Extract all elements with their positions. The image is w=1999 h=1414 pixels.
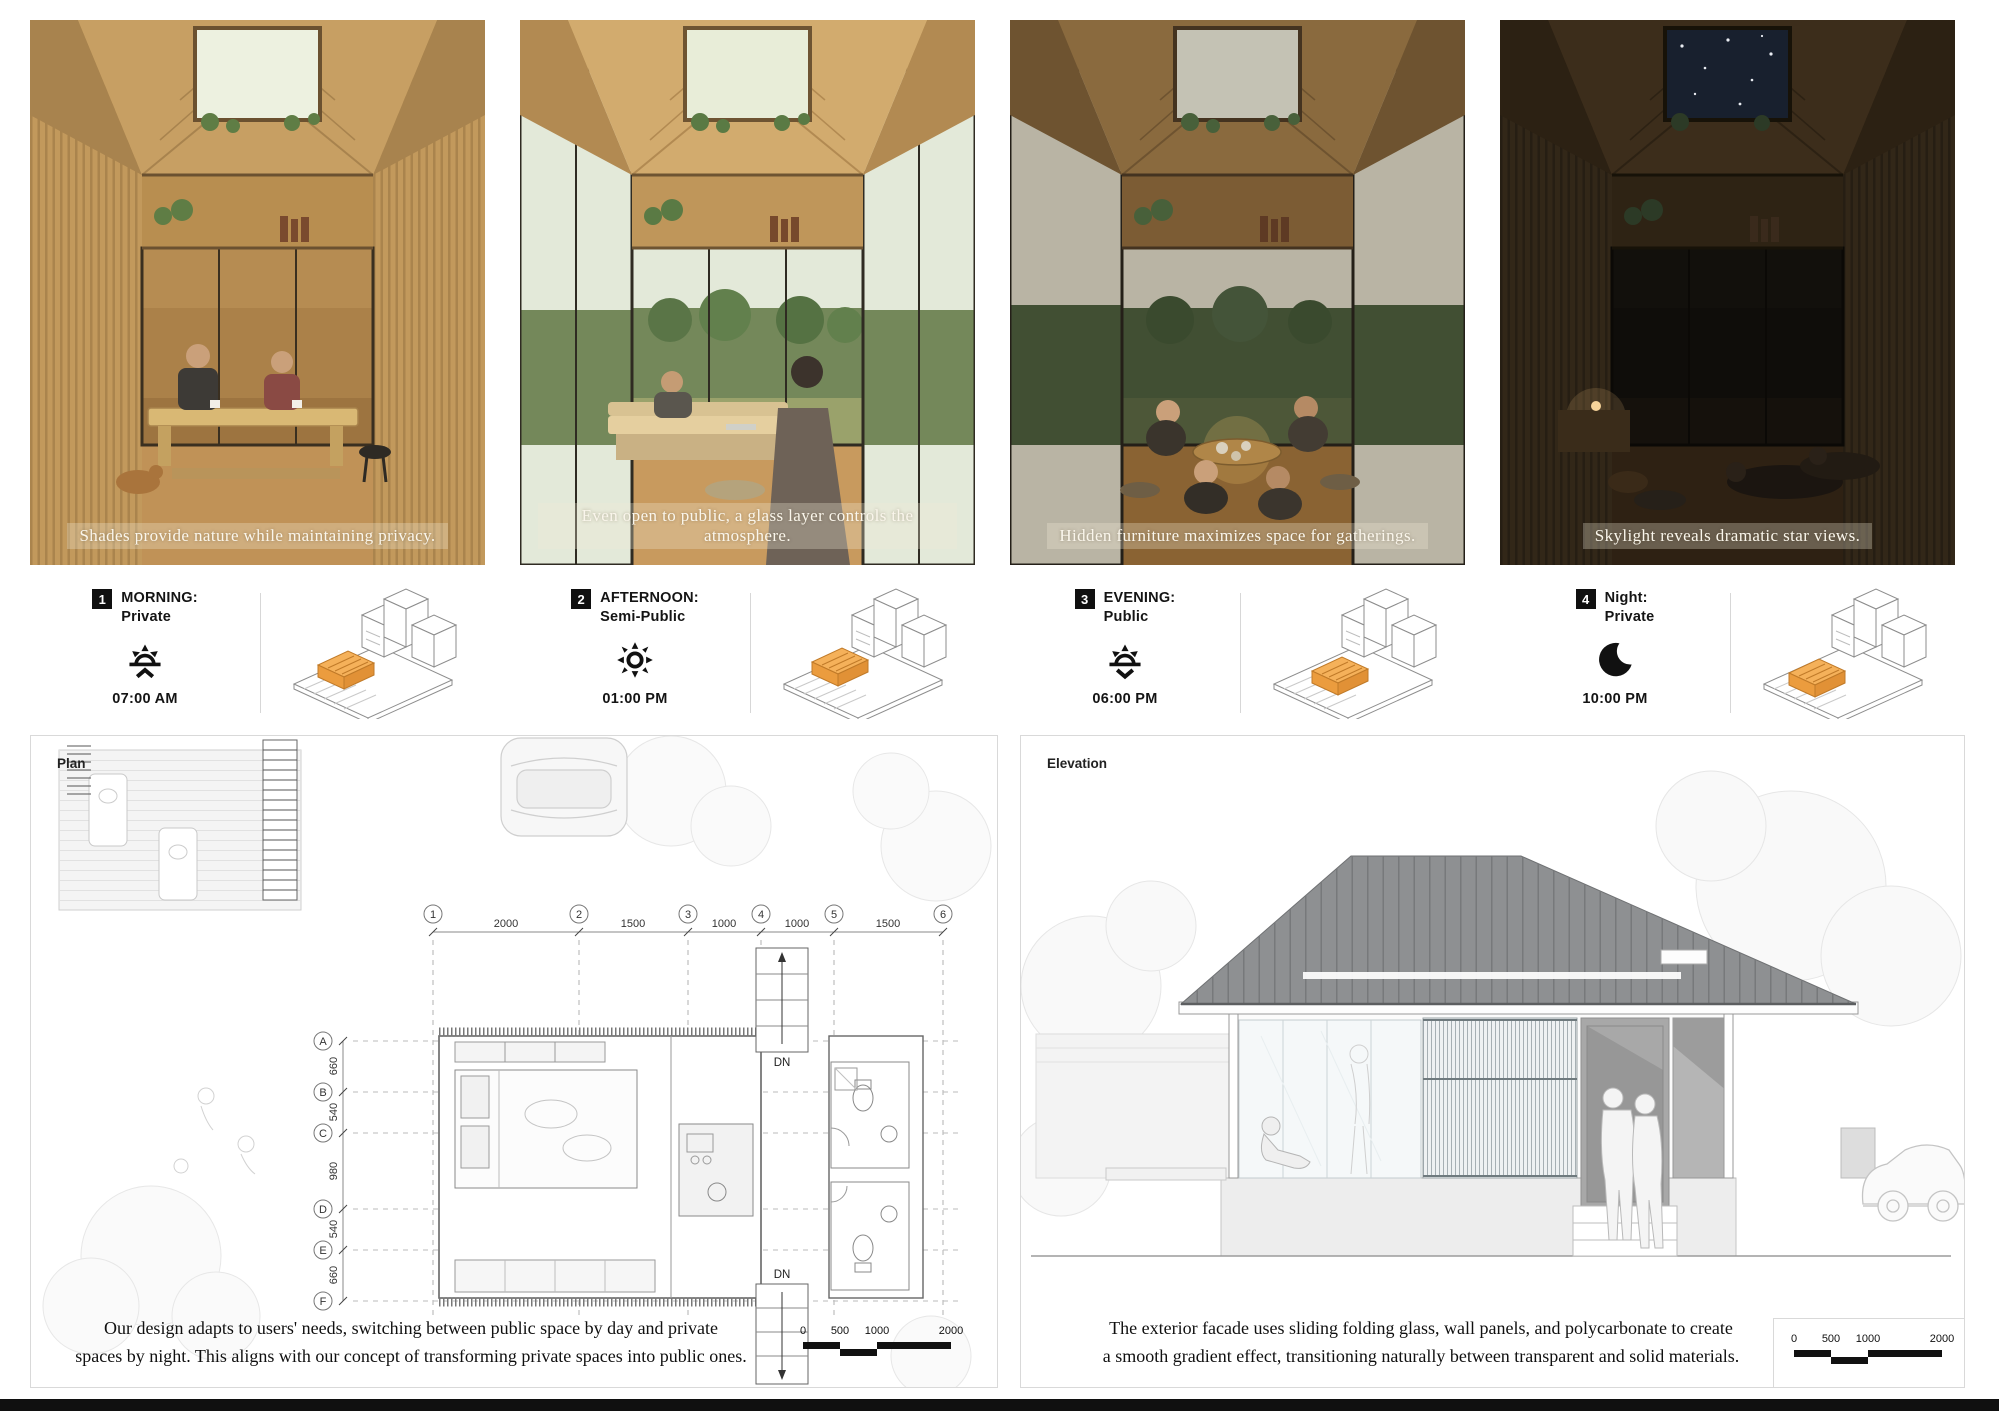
elevation-caption: The exterior facade uses sliding folding… [1081, 1315, 1761, 1371]
elevation-label: Elevation [1047, 756, 1107, 771]
grid-row-B: B [319, 1087, 326, 1099]
row-dim-C-D: 980 [328, 1162, 340, 1180]
row-dim-B-C: 540 [328, 1103, 340, 1121]
grid-col-1: 1 [430, 909, 436, 921]
col-dim-1-2: 2000 [494, 918, 518, 930]
footer-bar [0, 1399, 1999, 1411]
grid-row-F: F [320, 1296, 327, 1308]
scene-number-badge: 2 [571, 589, 591, 609]
grid-col-2: 2 [576, 909, 582, 921]
time-subtitle: Semi-Public [600, 608, 699, 627]
scale-tick-1000: 1000 [865, 1325, 889, 1337]
scene-number-badge: 3 [1075, 589, 1095, 609]
stair-dn-bottom: DN [774, 1269, 791, 1281]
scale-tick-0: 0 [800, 1325, 806, 1337]
time-info-row: 2 AFTERNOON: Semi-Public [520, 589, 975, 717]
time-block-morning: 1 MORNING: Private [30, 589, 260, 717]
col-dim-4-5: 1000 [785, 918, 809, 930]
scene-evening: Hidden furniture maximizes space for gat… [1010, 20, 1465, 717]
scene-morning: Shades provide nature while maintaining … [30, 20, 485, 717]
plan-scale-bar: 0 500 1000 2000 [793, 1320, 963, 1375]
time-title: MORNING: [121, 589, 198, 608]
time-value: 06:00 PM [1092, 691, 1157, 707]
render-caption-text: Shades provide nature while maintaining … [67, 523, 447, 549]
time-title: EVENING: [1104, 589, 1176, 608]
scene-number-badge: 1 [92, 589, 112, 609]
moon-icon [1595, 637, 1635, 683]
grid-row-A: A [319, 1036, 327, 1048]
render-caption: Skylight reveals dramatic star views. [1518, 523, 1937, 549]
row-dim-D-E: 540 [328, 1220, 340, 1238]
time-info-row: 4 Night: Private 10:00 PM [1500, 589, 1955, 717]
render-afternoon-illustration [520, 20, 975, 565]
time-subtitle: Private [121, 608, 198, 627]
render-morning: Shades provide nature while maintaining … [30, 20, 485, 565]
time-block-evening: 3 EVENING: Public 0 [1010, 589, 1240, 717]
scene-number-badge: 4 [1576, 589, 1596, 609]
grid-row-E: E [319, 1245, 326, 1257]
scale-tick-2000: 2000 [939, 1325, 963, 1337]
time-block-afternoon: 2 AFTERNOON: Semi-Public [520, 589, 750, 717]
grid-col-6: 6 [940, 909, 946, 921]
time-title: AFTERNOON: [600, 589, 699, 608]
time-value: 07:00 AM [112, 691, 178, 707]
render-caption-text: Skylight reveals dramatic star views. [1583, 523, 1872, 549]
col-dim-5-6: 1500 [876, 918, 900, 930]
sunset-icon [1105, 637, 1145, 683]
elevation-scale-box: 0 500 1000 2000 [1773, 1318, 1965, 1388]
axon-diagram-morning [261, 589, 485, 717]
scale-tick-2000: 2000 [1930, 1333, 1954, 1345]
scene-afternoon: Even open to public, a glass layer contr… [520, 20, 975, 717]
plan-caption-line1: Our design adapts to users' needs, switc… [104, 1318, 718, 1338]
render-night: Skylight reveals dramatic star views. [1500, 20, 1955, 565]
sunrise-icon [125, 637, 165, 683]
axon-diagram-afternoon [751, 589, 975, 717]
render-night-illustration [1500, 20, 1955, 565]
grid-row-C: C [319, 1128, 327, 1140]
time-info-row: 3 EVENING: Public 0 [1010, 589, 1465, 717]
grid-col-4: 4 [758, 909, 764, 921]
col-dim-2-3: 1500 [621, 918, 645, 930]
time-value: 01:00 PM [602, 691, 667, 707]
row-dim-A-B: 660 [328, 1057, 340, 1075]
grid-col-5: 5 [831, 909, 837, 921]
render-caption-text: Even open to public, a glass layer contr… [538, 503, 957, 549]
col-dim-3-4: 1000 [712, 918, 736, 930]
render-afternoon: Even open to public, a glass layer contr… [520, 20, 975, 565]
plan-caption: Our design adapts to users' needs, switc… [61, 1315, 761, 1371]
stair-dn-top: DN [774, 1057, 791, 1069]
elevation-caption-line2: a smooth gradient effect, transitioning … [1103, 1346, 1739, 1366]
axon-diagram-evening [1241, 589, 1465, 717]
axon-diagram-night [1731, 589, 1955, 717]
scene-night: Skylight reveals dramatic star views. 4 … [1500, 20, 1955, 717]
plan-caption-line2: spaces by night. This aligns with our co… [75, 1346, 747, 1366]
elevation-drawing [1021, 736, 1964, 1387]
time-subtitle: Public [1104, 608, 1176, 627]
scale-tick-500: 500 [831, 1325, 849, 1337]
scale-tick-1000: 1000 [1856, 1333, 1880, 1345]
grid-col-3: 3 [685, 909, 691, 921]
time-value: 10:00 PM [1582, 691, 1647, 707]
scale-tick-500: 500 [1822, 1333, 1840, 1345]
sun-icon [615, 637, 655, 683]
elevation-scale-bar: 0 500 1000 2000 [1784, 1328, 1954, 1378]
presentation-board: Shades provide nature while maintaining … [0, 0, 1999, 1414]
elevation-caption-line1: The exterior facade uses sliding folding… [1109, 1318, 1733, 1338]
floor-plan-drawing: 1 2 3 4 5 6 2000 1500 1000 1000 1500 [31, 736, 997, 1387]
render-morning-illustration [30, 20, 485, 565]
elevation-panel: Elevation [1020, 735, 1965, 1388]
render-caption: Shades provide nature while maintaining … [48, 523, 467, 549]
render-caption-text: Hidden furniture maximizes space for gat… [1047, 523, 1427, 549]
time-title: Night: [1605, 589, 1655, 608]
render-evening: Hidden furniture maximizes space for gat… [1010, 20, 1465, 565]
row-dim-E-F: 660 [328, 1266, 340, 1284]
grid-row-D: D [319, 1204, 327, 1216]
time-block-night: 4 Night: Private 10:00 PM [1500, 589, 1730, 717]
plan-panel: Plan [30, 735, 998, 1388]
plan-label: Plan [57, 756, 86, 771]
render-evening-illustration [1010, 20, 1465, 565]
render-caption: Hidden furniture maximizes space for gat… [1028, 523, 1447, 549]
time-subtitle: Private [1605, 608, 1655, 627]
render-caption: Even open to public, a glass layer contr… [538, 503, 957, 549]
scale-tick-0: 0 [1791, 1333, 1797, 1345]
time-info-row: 1 MORNING: Private [30, 589, 485, 717]
